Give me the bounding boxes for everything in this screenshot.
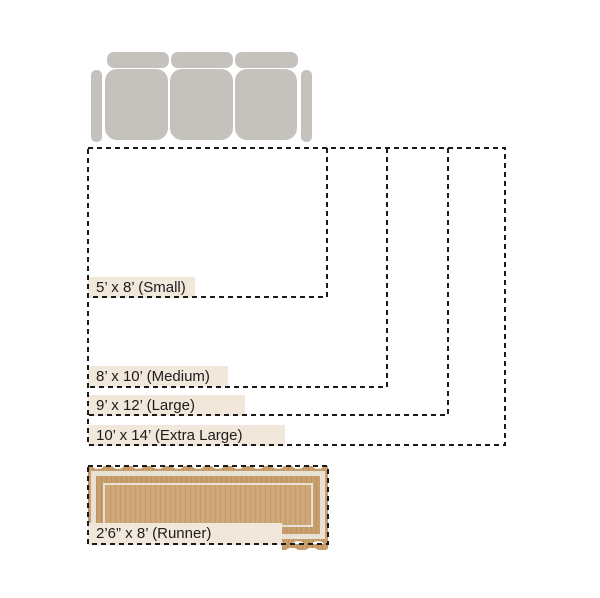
size-label-small: 5’ x 8’ (Small) bbox=[88, 277, 195, 298]
size-label-large: 9’ x 12’ (Large) bbox=[88, 395, 245, 416]
sofa-back-cushion-2 bbox=[171, 52, 233, 68]
sofa-armrest-right bbox=[301, 70, 312, 142]
rug-scalloped-edge-top bbox=[88, 466, 328, 471]
size-label-runner: 2’6” x 8’ (Runner) bbox=[88, 523, 282, 545]
sofa-icon bbox=[91, 52, 312, 142]
sofa-seat-cushion-2 bbox=[170, 69, 233, 140]
rug-center-field bbox=[103, 483, 313, 527]
runner-rug-overhang bbox=[282, 544, 328, 550]
size-label-extra-large: 10’ x 14’ (Extra Large) bbox=[88, 425, 285, 446]
size-label-medium: 8’ x 10’ (Medium) bbox=[88, 366, 228, 387]
sofa-back-cushion-1 bbox=[107, 52, 169, 68]
sofa-back-cushion-3 bbox=[235, 52, 298, 68]
sofa-seat-cushion-3 bbox=[235, 69, 297, 140]
rug-outline-small bbox=[88, 148, 327, 297]
rug-outline-medium bbox=[88, 148, 387, 387]
rug-size-guide-diagram: 5’ x 8’ (Small) 8’ x 10’ (Medium) 9’ x 1… bbox=[0, 0, 600, 598]
sofa-seat-cushion-1 bbox=[105, 69, 168, 140]
sofa-armrest-left bbox=[91, 70, 102, 142]
rug-scalloped-edge-overhang bbox=[282, 546, 328, 550]
